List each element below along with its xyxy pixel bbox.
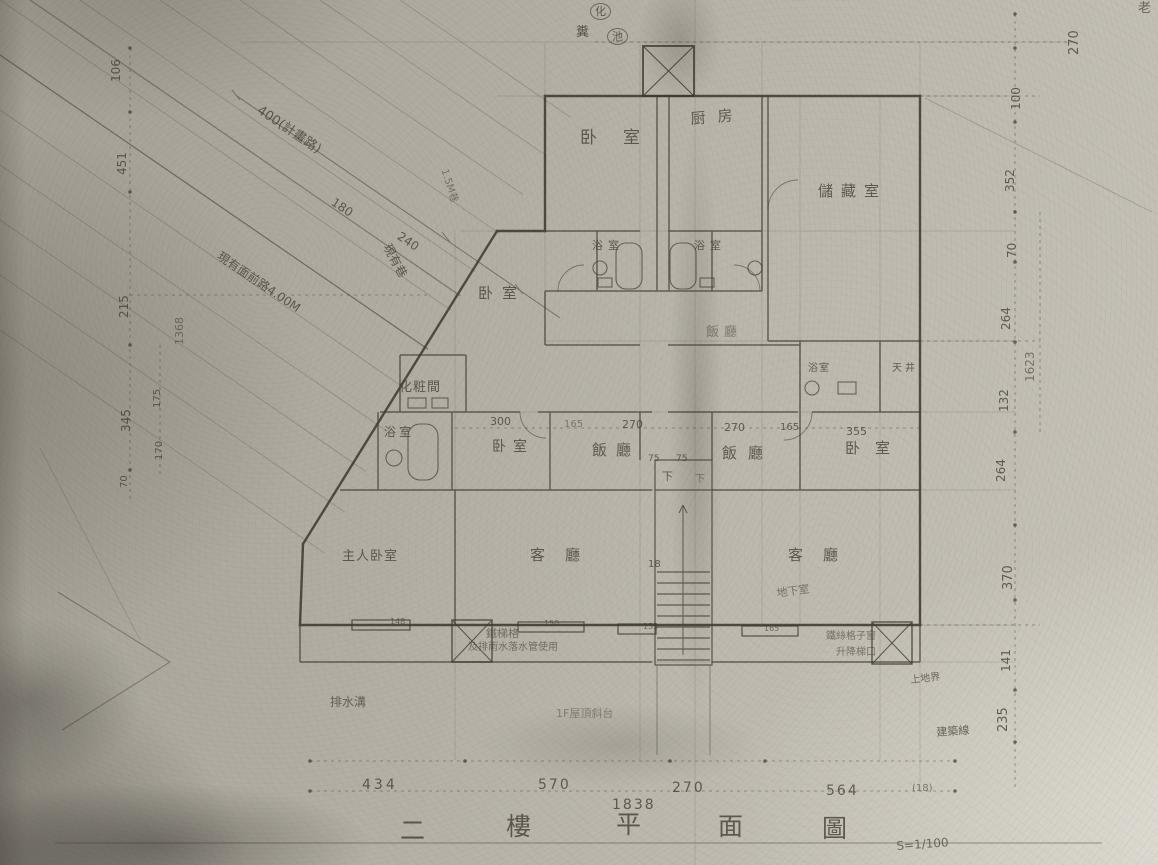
floor-plan-scan: 卧室厨房儲藏室浴室浴室卧室飯廳化粧間浴室卧室飯廳飯廳卧室浴室天井主人卧室客廳客廳…: [0, 0, 1158, 865]
plan-linework: [0, 0, 1158, 865]
